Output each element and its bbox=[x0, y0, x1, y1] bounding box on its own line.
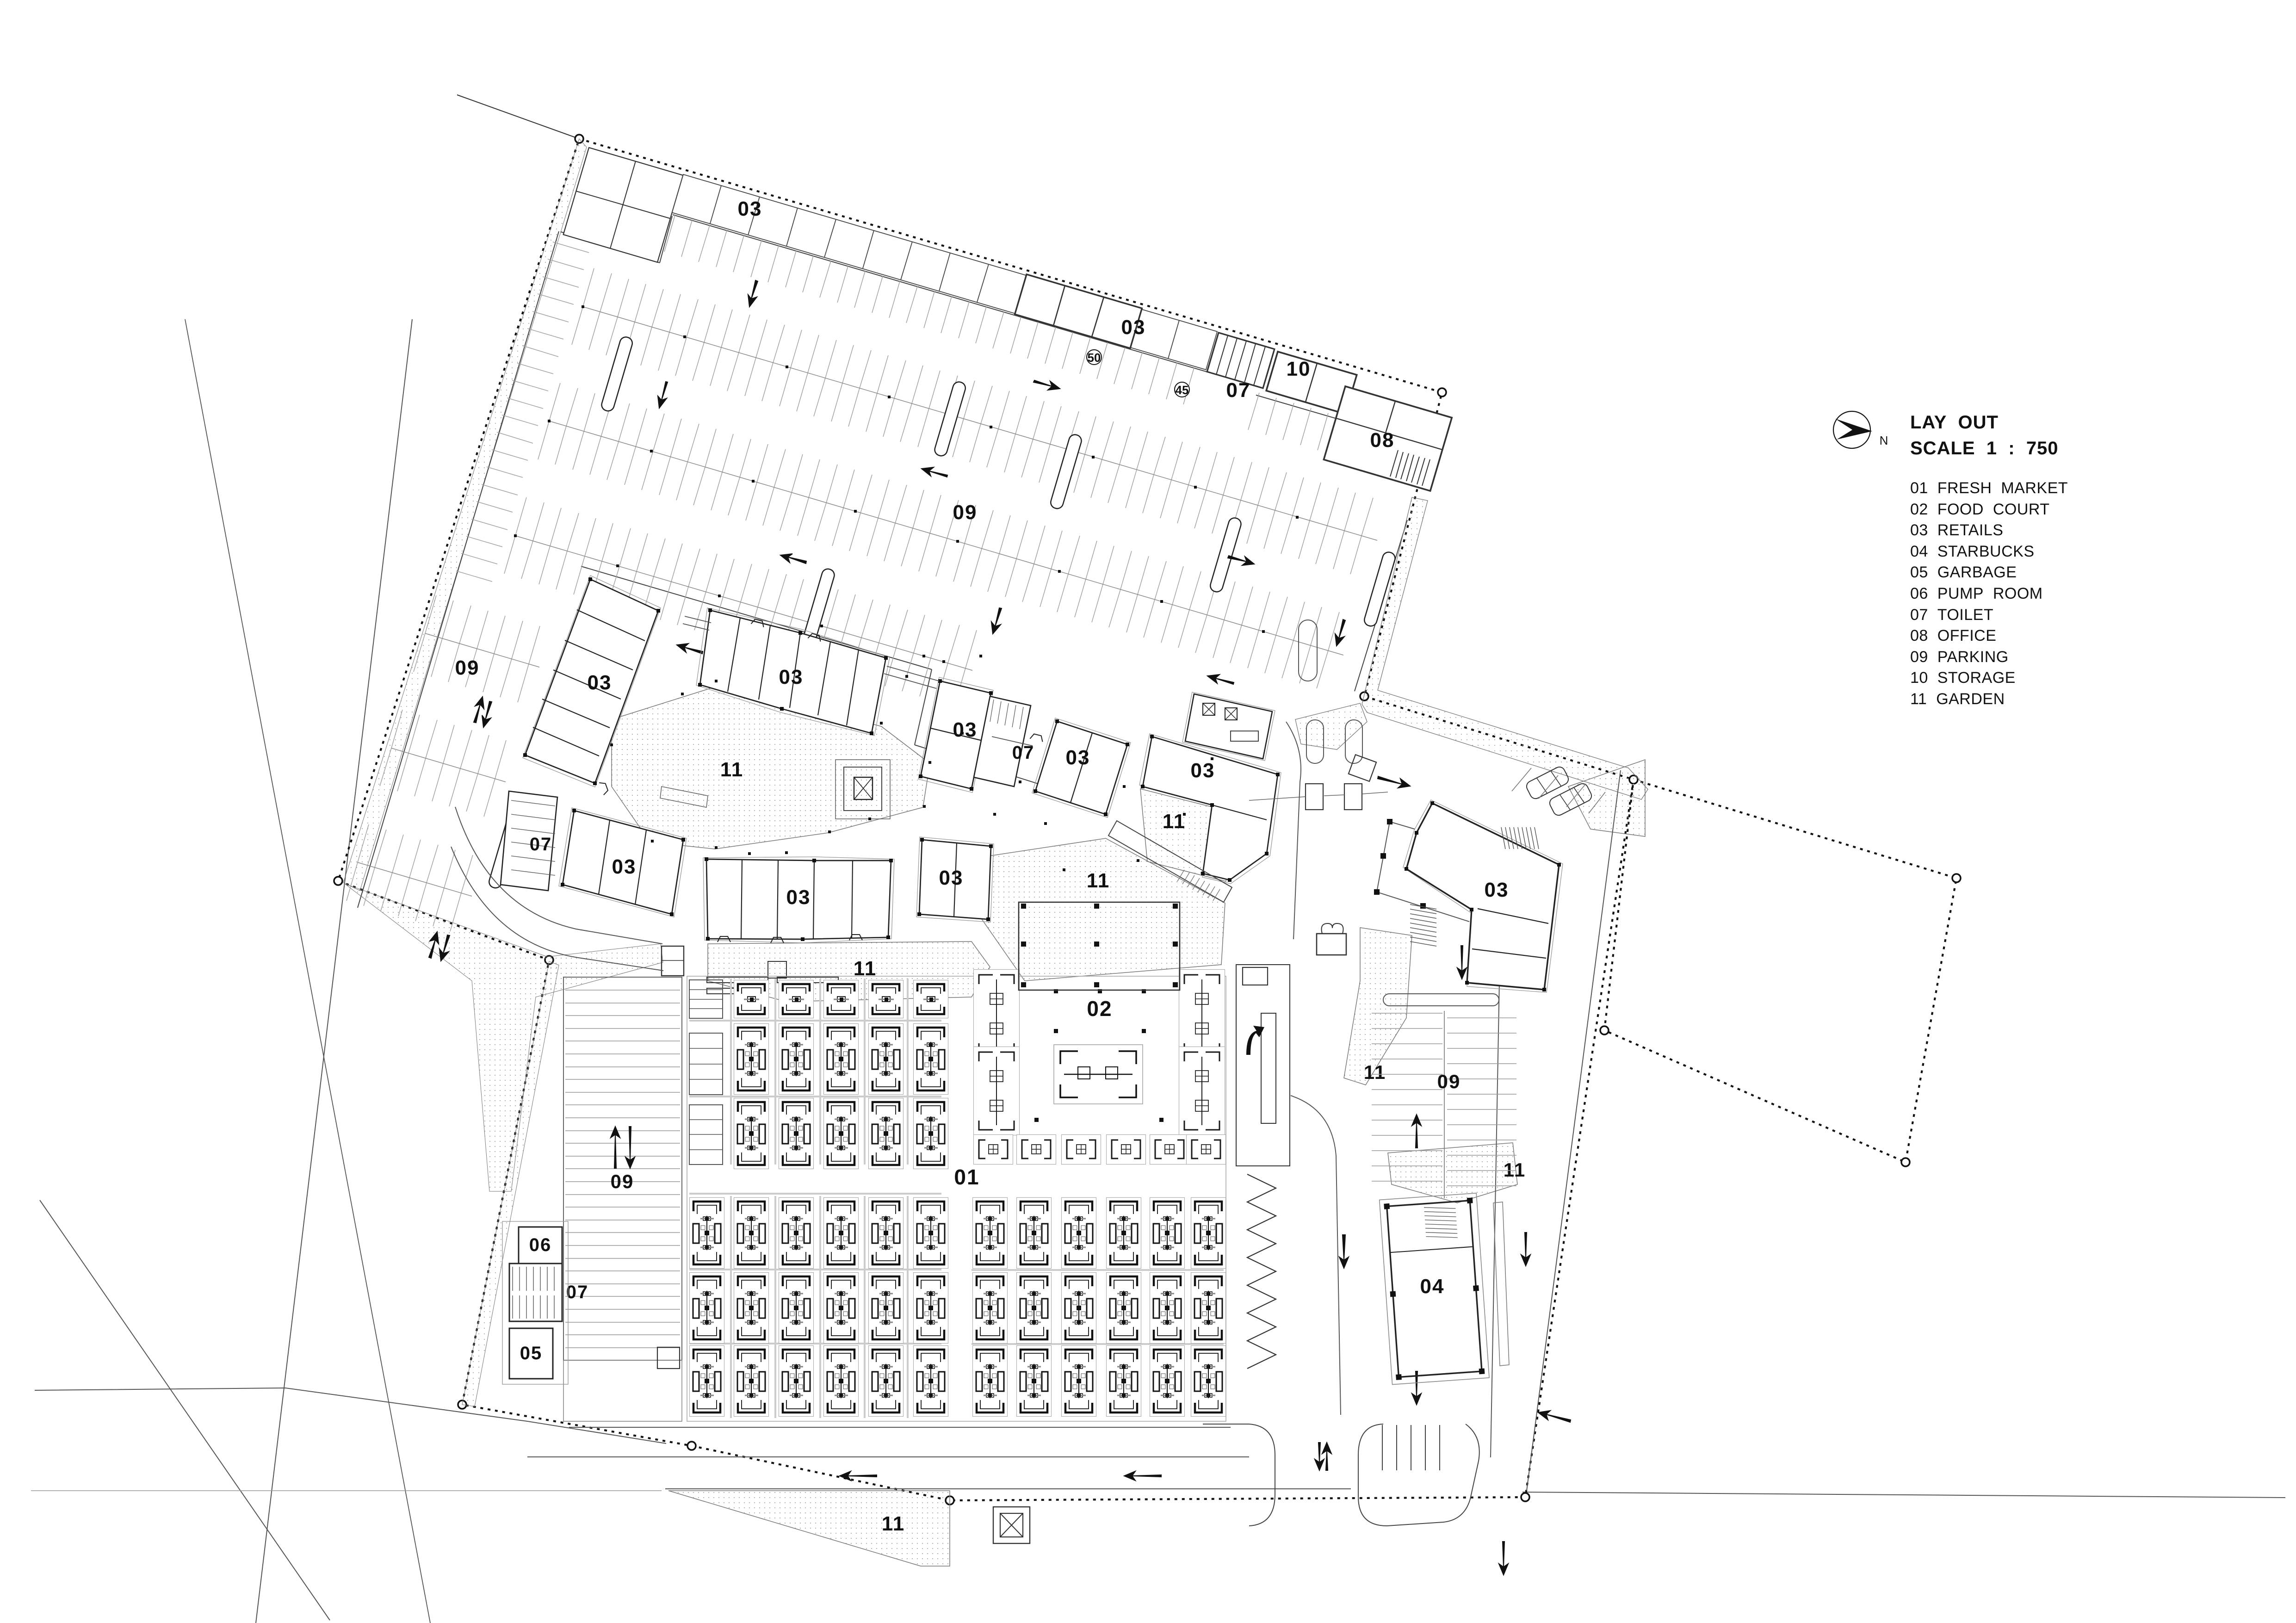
svg-text:03: 03 bbox=[588, 671, 612, 694]
svg-text:11: 11 bbox=[1364, 1061, 1386, 1083]
svg-text:07: 07 bbox=[530, 834, 552, 855]
svg-text:45: 45 bbox=[1176, 383, 1189, 397]
svg-text:06: 06 bbox=[529, 1235, 552, 1255]
svg-text:03: 03 bbox=[779, 666, 804, 688]
svg-text:05: 05 bbox=[520, 1343, 543, 1363]
svg-text:04: 04 bbox=[1420, 1275, 1445, 1298]
svg-text:11: 11 bbox=[720, 758, 744, 781]
svg-text:09: 09 bbox=[455, 657, 480, 679]
svg-text:04 STARBUCKS: 04 STARBUCKS bbox=[1910, 543, 2035, 560]
svg-text:LAY OUT: LAY OUT bbox=[1910, 412, 1999, 433]
svg-text:09 PARKING: 09 PARKING bbox=[1910, 648, 2009, 666]
svg-text:02: 02 bbox=[1087, 997, 1112, 1021]
svg-text:03: 03 bbox=[1191, 759, 1215, 782]
svg-text:11: 11 bbox=[1163, 810, 1186, 833]
svg-text:03: 03 bbox=[612, 855, 637, 878]
svg-text:11: 11 bbox=[882, 1512, 905, 1535]
svg-text:11: 11 bbox=[1087, 869, 1110, 892]
svg-text:50: 50 bbox=[1088, 351, 1101, 365]
svg-text:03: 03 bbox=[1066, 746, 1090, 769]
svg-text:01: 01 bbox=[954, 1165, 979, 1189]
svg-text:01 FRESH MARKET: 01 FRESH MARKET bbox=[1910, 479, 2068, 497]
svg-text:11 GARDEN: 11 GARDEN bbox=[1910, 690, 2005, 708]
svg-text:03 RETAILS: 03 RETAILS bbox=[1910, 521, 2003, 539]
svg-text:08: 08 bbox=[1370, 429, 1395, 452]
svg-text:03: 03 bbox=[786, 886, 811, 909]
svg-text:10: 10 bbox=[1287, 358, 1311, 380]
svg-text:02 FOOD COURT: 02 FOOD COURT bbox=[1910, 501, 2050, 518]
svg-text:05 GARBAGE: 05 GARBAGE bbox=[1910, 564, 2017, 581]
svg-text:07 TOILET: 07 TOILET bbox=[1910, 606, 1993, 624]
svg-text:11: 11 bbox=[1504, 1159, 1526, 1181]
svg-text:N: N bbox=[1880, 434, 1888, 447]
svg-text:09: 09 bbox=[611, 1171, 634, 1192]
svg-text:07: 07 bbox=[1226, 379, 1251, 402]
svg-text:06 PUMP ROOM: 06 PUMP ROOM bbox=[1910, 585, 2043, 602]
svg-text:03: 03 bbox=[939, 867, 964, 889]
svg-text:09: 09 bbox=[1437, 1071, 1461, 1092]
svg-text:09: 09 bbox=[953, 501, 978, 524]
svg-text:SCALE 1 : 750: SCALE 1 : 750 bbox=[1910, 438, 2059, 458]
svg-text:03: 03 bbox=[953, 719, 978, 741]
svg-text:08 OFFICE: 08 OFFICE bbox=[1910, 627, 1996, 644]
svg-text:10 STORAGE: 10 STORAGE bbox=[1910, 669, 2016, 687]
svg-text:07: 07 bbox=[566, 1282, 589, 1302]
svg-text:03: 03 bbox=[738, 198, 762, 220]
svg-text:03: 03 bbox=[1485, 879, 1509, 901]
svg-text:03: 03 bbox=[1121, 316, 1146, 339]
